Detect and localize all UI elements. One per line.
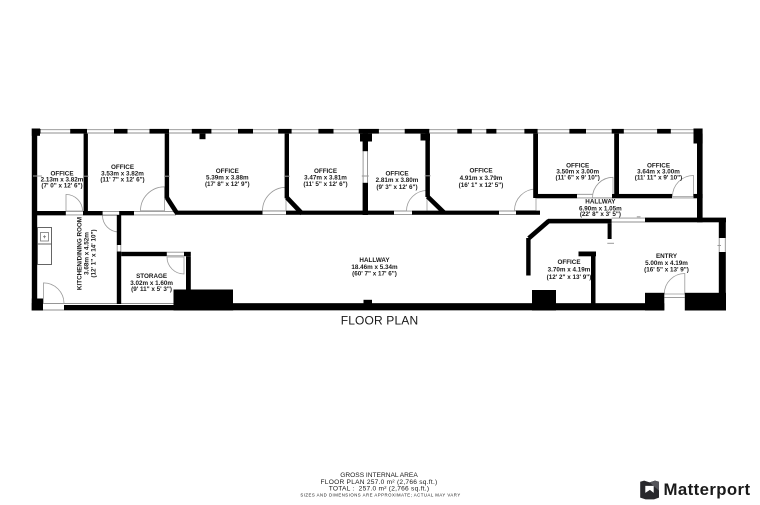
svg-text:OFFICE: OFFICE (469, 167, 492, 174)
svg-text:ENTRY: ENTRY (656, 253, 678, 260)
svg-text:TOTAL : 257.0 m² (2,766 sq.ft: TOTAL : 257.0 m² (2,766 sq.ft.) (329, 485, 430, 492)
svg-text:Matterport: Matterport (664, 480, 751, 499)
svg-text:(11' 11" x 9' 10"): (11' 11" x 9' 10") (635, 175, 682, 182)
svg-text:(11' 6" x 9' 10"): (11' 6" x 9' 10") (556, 175, 600, 182)
svg-text:KITCHEN/DINING ROOM: KITCHEN/DINING ROOM (77, 217, 84, 290)
svg-text:(17' 8" x 12' 9"): (17' 8" x 12' 9") (205, 181, 250, 188)
svg-text:(11' 7" x 12' 6"): (11' 7" x 12' 6") (100, 177, 144, 184)
svg-text:HALLWAY: HALLWAY (359, 257, 390, 264)
svg-text:(16' 1" x 12' 5"): (16' 1" x 12' 5") (459, 182, 504, 189)
svg-text:(22' 8" x 3' 5"): (22' 8" x 3' 5") (580, 211, 621, 218)
svg-text:3.70m x 4.19m: 3.70m x 4.19m (548, 267, 591, 274)
svg-text:(60' 7" x 17' 6"): (60' 7" x 17' 6") (352, 271, 397, 278)
svg-text:(16' 5" x 13' 9"): (16' 5" x 13' 9") (644, 267, 689, 274)
svg-text:(7' 0" x 12' 6"): (7' 0" x 12' 6") (41, 183, 82, 190)
svg-text:(9' 3" x 12' 6"): (9' 3" x 12' 6") (376, 184, 417, 191)
svg-text:GROSS INTERNAL AREA: GROSS INTERNAL AREA (340, 472, 418, 479)
svg-text:4.91m x 3.79m: 4.91m x 3.79m (460, 175, 503, 182)
svg-text:OFFICE: OFFICE (557, 259, 580, 266)
svg-text:(9' 11" x 5' 3"): (9' 11" x 5' 3") (131, 286, 172, 293)
svg-text:(11' 5" x 12' 6"): (11' 5" x 12' 6") (303, 181, 347, 188)
svg-text:(12' 1" x 14' 10"): (12' 1" x 14' 10") (90, 229, 97, 277)
svg-text:(12' 2" x 13' 9"): (12' 2" x 13' 9") (547, 274, 592, 281)
svg-text:FLOOR PLAN: FLOOR PLAN (341, 314, 419, 328)
svg-text:SIZES AND DIMENSIONS ARE APPRO: SIZES AND DIMENSIONS ARE APPROXIMATE; AC… (300, 492, 460, 497)
